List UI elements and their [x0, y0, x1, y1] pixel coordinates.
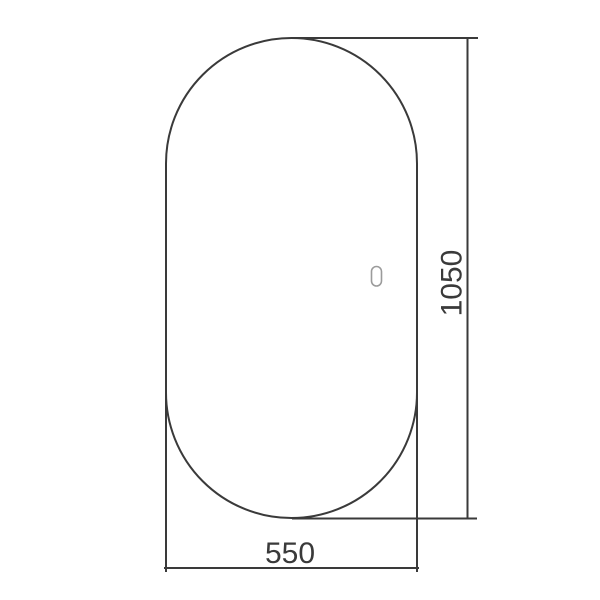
dimension-drawing: 1050 550 [0, 0, 600, 600]
width-dimension-label: 550 [265, 537, 315, 570]
height-dimension-label: 1050 [436, 250, 469, 317]
mirror-outline [166, 38, 417, 518]
drawing-canvas: 1050 550 [0, 0, 600, 600]
touch-sensor-icon [372, 267, 382, 287]
